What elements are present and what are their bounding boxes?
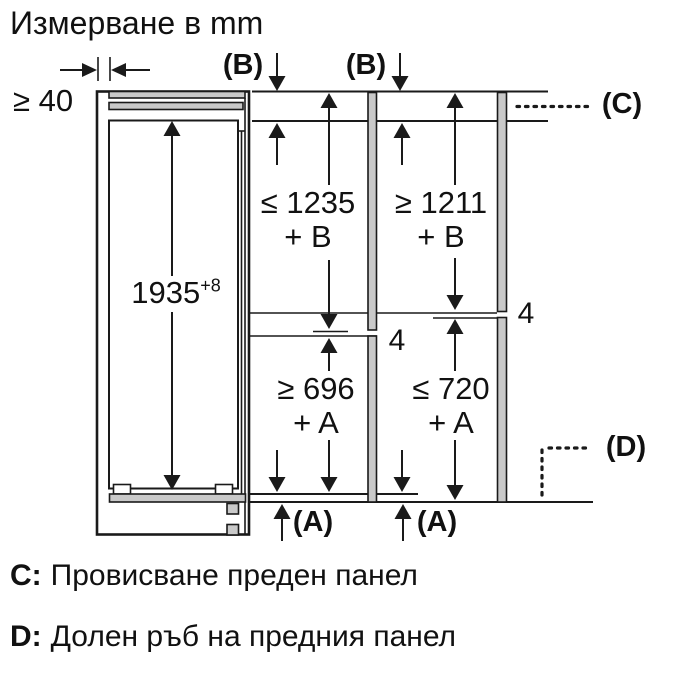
front-panel-left-upper [368, 93, 377, 331]
b-arrow-left [269, 53, 286, 91]
label-b-right: (B) [346, 50, 386, 81]
dim-left-gap: ≥ 40 [13, 84, 73, 117]
legend-c-key: C: [10, 559, 42, 593]
front-panel-right-lower [498, 318, 507, 503]
diagram-title: Измерване в mm [10, 6, 263, 41]
label-b-left: (B) [223, 50, 263, 81]
dim-niche-height: 1935+8 [131, 276, 221, 309]
dim-col2-lower: ≤ 720 + A [412, 372, 489, 440]
installation-diagram: Измерване в mm ≥ 40 (B) (B) (C) (D) (A) … [0, 0, 700, 700]
dim-col1-upper: ≤ 1235 + B [261, 186, 356, 254]
label-d-ref: (D) [606, 432, 646, 463]
niche-tolerance: +8 [200, 276, 221, 296]
legend-d-key: D: [10, 620, 42, 654]
dim-col2-upper: ≥ 1211 + B [395, 186, 487, 254]
hinge-block-lower [227, 525, 239, 536]
a-arrow-left [274, 504, 291, 541]
label-a-left: (A) [293, 507, 333, 538]
legend-d-text: Долен ръб на предния панел [51, 620, 456, 654]
b-arrow-right [392, 53, 409, 91]
label-a-right: (A) [417, 507, 457, 538]
foot-right [216, 485, 233, 495]
foot-left [114, 485, 131, 495]
legend-d: D: Долен ръб на предния панел [10, 620, 456, 654]
dim-col1-lower: ≥ 696 + A [277, 372, 354, 440]
dim-panel-gap-left: 4 [389, 325, 406, 357]
col2-inner-arrows [394, 123, 411, 492]
front-panel-right-upper [498, 93, 507, 312]
top-panel-strip-2 [109, 103, 243, 110]
front-panel-left-lower [368, 336, 377, 502]
diagram-drawing [0, 0, 700, 700]
legend-c-text: Провисване преден панел [51, 559, 418, 593]
dim-panel-gap-right: 4 [518, 298, 535, 330]
hinge-block-upper [227, 504, 239, 515]
a-arrow-right [395, 504, 412, 541]
plinth-bar [110, 494, 246, 502]
legend-c: C: Провисване преден панел [10, 559, 418, 593]
gap40-dimension-arrows [60, 57, 150, 81]
top-panel-strip-1 [109, 92, 245, 99]
label-c-ref: (C) [602, 89, 642, 120]
